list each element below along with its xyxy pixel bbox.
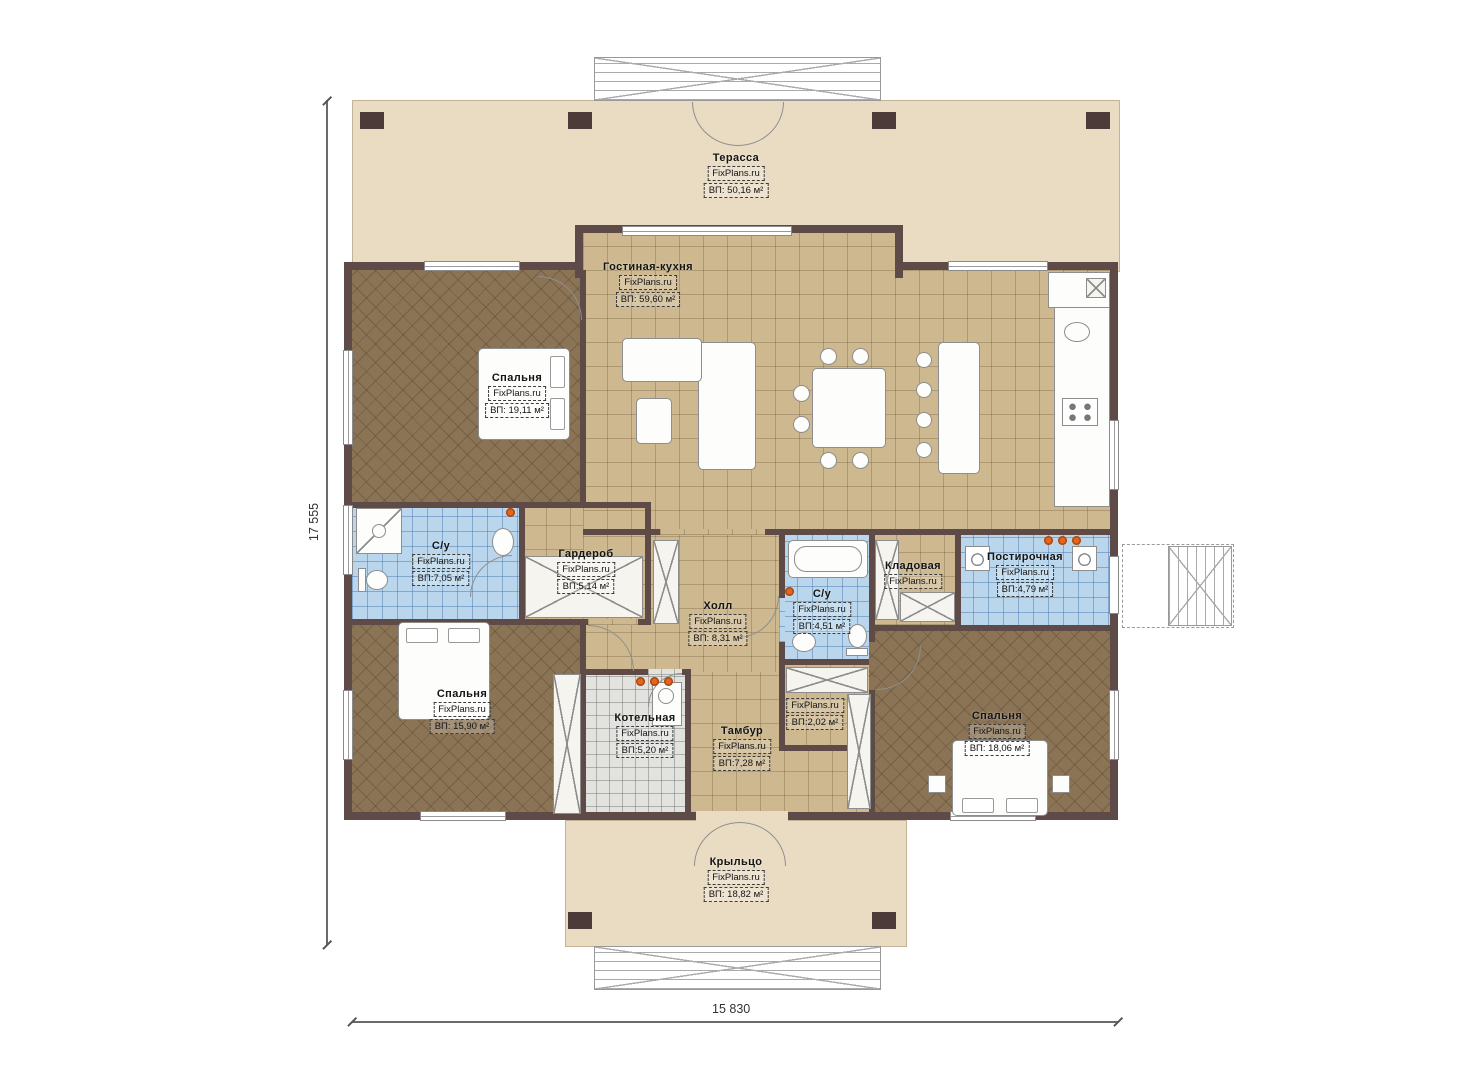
room-area: ВП:5,14 м² [558, 579, 615, 594]
horizontal-dimension-line [352, 1021, 1118, 1023]
room-name: Гостиная-кухня [603, 261, 693, 273]
toilet-bowl [848, 624, 867, 648]
room-label-laundry: Постирочная FixPlans.ru ВП:4,79 м² [987, 551, 1063, 597]
pillow [448, 628, 480, 643]
pillow [962, 798, 994, 813]
opening-porch-entry [696, 811, 788, 821]
stove-icon [1062, 398, 1098, 426]
room-name: Постирочная [987, 551, 1063, 563]
room-name: Спальня [437, 688, 487, 700]
watermark: FixPlans.ru [707, 870, 765, 885]
terrace-pillar [872, 112, 896, 129]
toilet-tank [846, 648, 868, 656]
interior-wall [782, 659, 875, 665]
horizontal-dimension-label: 15 830 [712, 1002, 750, 1016]
watermark: FixPlans.ru [689, 614, 747, 629]
dining-chair [852, 348, 869, 365]
room-label-closet: FixPlans.ru ВП:2,02 м² [786, 696, 844, 730]
bar-stool [916, 412, 932, 428]
heat-marker [650, 677, 659, 686]
dining-chair [793, 416, 810, 433]
bedroom-bl-cabinet [553, 674, 581, 814]
sink-icon [792, 632, 816, 652]
sofa [698, 342, 756, 470]
room-area: ВП: 18,82 м² [704, 887, 769, 902]
room-area: ВП:7,05 м² [413, 571, 470, 586]
heat-marker [1072, 536, 1081, 545]
room-name: Кладовая [885, 560, 941, 572]
porch-pillar [872, 912, 896, 929]
room-label-hall: Холл FixPlans.ru ВП: 8,31 м² [688, 600, 747, 646]
floor-plan: Терасса FixPlans.ru ВП: 50,16 м² Гостина… [0, 0, 1474, 1080]
watermark: FixPlans.ru [884, 574, 942, 589]
room-area: ВП:4,79 м² [997, 582, 1054, 597]
nightstand [928, 775, 946, 793]
room-area: ВП: 50,16 м² [704, 183, 769, 198]
room-name: Котельная [614, 712, 675, 724]
interior-wall [645, 505, 651, 625]
closet-cabinet [847, 694, 871, 809]
room-label-wardrobe: Гардероб FixPlans.ru ВП:5,14 м² [557, 548, 615, 594]
pillow [406, 628, 438, 643]
room-name: С/у [813, 588, 831, 600]
dryer [1072, 546, 1097, 571]
room-label-bath-mid: С/у FixPlans.ru ВП:4,51 м² [793, 588, 851, 634]
window [424, 261, 520, 271]
terrace-pillar [360, 112, 384, 129]
toilet-tank [358, 568, 366, 592]
closet-cabinet [786, 667, 868, 693]
bar-stool [916, 442, 932, 458]
interior-wall [580, 270, 586, 505]
watermark: FixPlans.ru [786, 698, 844, 713]
watermark: FixPlans.ru [968, 724, 1026, 739]
terrace-pillar [1086, 112, 1110, 129]
watermark: FixPlans.ru [412, 554, 470, 569]
window [343, 690, 353, 760]
dining-chair [820, 348, 837, 365]
wardrobe-cabinet [653, 540, 679, 624]
pillow [1006, 798, 1038, 813]
shower-drain [372, 524, 386, 538]
watermark: FixPlans.ru [707, 166, 765, 181]
room-label-bath-tl: С/у FixPlans.ru ВП:7,05 м² [412, 540, 470, 586]
sofa-section [622, 338, 702, 382]
room-name: Холл [703, 600, 732, 612]
opening-bedroom-bl [588, 619, 638, 625]
room-area: ВП: 18,06 м² [965, 741, 1030, 756]
watermark: FixPlans.ru [793, 602, 851, 617]
porch-pillar [568, 912, 592, 929]
room-area: ВП:2,02 м² [787, 715, 844, 730]
vertical-dimension-label: 17 555 [307, 503, 321, 541]
heat-marker [1044, 536, 1053, 545]
vertical-dimension-line [326, 100, 328, 945]
terrace-pillar [568, 112, 592, 129]
heat-marker [506, 508, 515, 517]
window [420, 811, 506, 821]
window [948, 261, 1048, 271]
heat-marker [1058, 536, 1067, 545]
watermark: FixPlans.ru [619, 275, 677, 290]
bathtub-inner [794, 546, 862, 572]
coffee-table [636, 398, 672, 444]
window [1109, 690, 1119, 760]
interior-wall [872, 625, 1112, 631]
room-label-porch: Крыльцо FixPlans.ru ВП: 18,82 м² [704, 856, 769, 902]
room-name: Спальня [972, 710, 1022, 722]
room-area: ВП:5,20 м² [617, 743, 674, 758]
room-name: Спальня [492, 372, 542, 384]
room-area: ВП: 15,90 м² [430, 719, 495, 734]
window [343, 505, 353, 575]
room-area: ВП: 59,60 м² [616, 292, 681, 307]
pillow [550, 356, 565, 388]
room-label-bedroom-bl: Спальня FixPlans.ru ВП: 15,90 м² [430, 688, 495, 734]
watermark: FixPlans.ru [557, 562, 615, 577]
side-stairs [1168, 546, 1232, 626]
nightstand [1052, 775, 1070, 793]
watermark: FixPlans.ru [433, 702, 491, 717]
window [622, 226, 792, 236]
toilet-bowl [366, 570, 388, 590]
room-area: ВП: 8,31 м² [688, 631, 747, 646]
sink-icon [1064, 322, 1090, 342]
bar-stool [916, 382, 932, 398]
room-area: ВП: 19,11 м² [485, 403, 549, 418]
room-label-terrace: Терасса FixPlans.ru ВП: 50,16 м² [704, 152, 769, 198]
pillow [550, 398, 565, 430]
interior-wall [779, 535, 785, 751]
dining-chair [793, 385, 810, 402]
opening-bedroom-br [869, 642, 875, 690]
room-name: С/у [432, 540, 450, 552]
room-label-bedroom-br: Спальня FixPlans.ru ВП: 18,06 м² [965, 710, 1030, 756]
dining-chair [820, 452, 837, 469]
room-label-tambour: Тамбур FixPlans.ru ВП:7,28 м² [713, 725, 771, 771]
dining-chair [852, 452, 869, 469]
interior-wall [685, 672, 691, 820]
watermark: FixPlans.ru [996, 565, 1054, 580]
laundry-exterior-door [1109, 556, 1119, 614]
room-name: Крыльцо [710, 856, 763, 868]
room-label-pantry: Кладовая FixPlans.ru [884, 560, 942, 589]
terrace-stairs [594, 57, 881, 101]
room-name: Гардероб [558, 548, 613, 560]
room-label-boiler: Котельная FixPlans.ru ВП:5,20 м² [614, 712, 675, 758]
watermark: FixPlans.ru [488, 386, 546, 401]
room-name: Терасса [713, 152, 759, 164]
opening-living-hall [660, 529, 765, 535]
room-label-living: Гостиная-кухня FixPlans.ru ВП: 59,60 м² [603, 261, 693, 307]
window [343, 350, 353, 445]
room-name: Тамбур [721, 725, 763, 737]
dining-table [812, 368, 886, 448]
opening-bath-mid [779, 598, 785, 642]
sink-icon [492, 528, 514, 556]
heat-marker [636, 677, 645, 686]
interior-wall [955, 535, 961, 628]
pantry-cabinet [900, 592, 955, 622]
kitchen-sink-icon [1086, 278, 1106, 298]
heat-marker [664, 677, 673, 686]
watermark: FixPlans.ru [713, 739, 771, 754]
bar-stool [916, 352, 932, 368]
room-area: ВП:7,28 м² [714, 756, 771, 771]
window [1109, 420, 1119, 490]
porch-stairs [594, 946, 881, 990]
watermark: FixPlans.ru [616, 726, 674, 741]
kitchen-island [938, 342, 980, 474]
room-label-bedroom-tl: Спальня FixPlans.ru ВП: 19,11 м² [485, 372, 549, 418]
room-area: ВП:4,51 м² [794, 619, 851, 634]
